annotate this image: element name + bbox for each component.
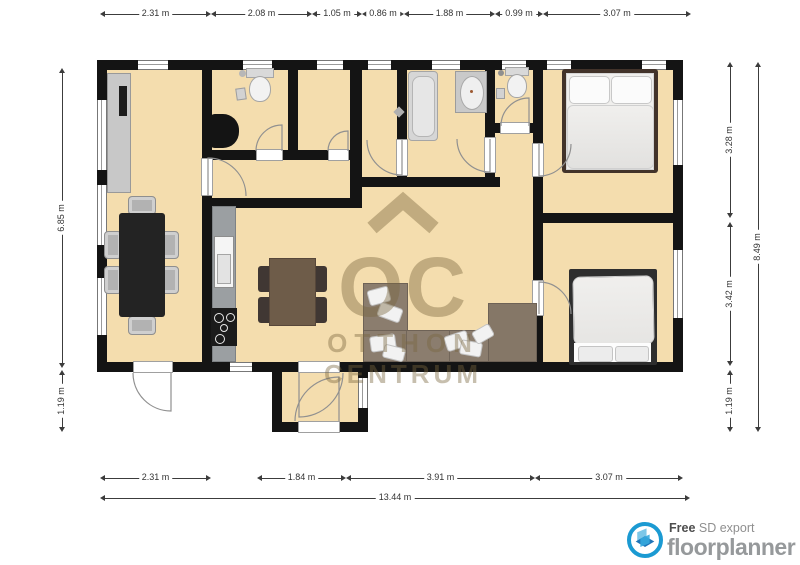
double-bed [562, 69, 658, 173]
single-bed [569, 269, 657, 365]
dim-label: 1.88 m [433, 9, 467, 19]
dim-bottom-3: 3.91 m [346, 472, 535, 484]
window-icon [368, 60, 391, 70]
dim-label: 6.85 m [57, 201, 67, 235]
sofa-chaise [488, 303, 537, 362]
dim-top-6: 0.99 m [495, 8, 543, 20]
window-icon [432, 60, 460, 70]
dim-label: 1.19 m [725, 384, 735, 418]
dim-label: 2.31 m [139, 9, 173, 19]
dim-label: 3.07 m [592, 473, 626, 483]
door-hallway [201, 158, 213, 196]
dim-label: 3.42 m [725, 277, 735, 311]
wall-wc-storage-divider [288, 70, 298, 155]
toilet-icon [507, 74, 527, 98]
door-bath-nook [396, 139, 408, 176]
window-icon [97, 100, 107, 170]
door-storage [328, 149, 349, 161]
dim-right-2: 3.42 m [724, 222, 736, 366]
toilet-icon [249, 76, 271, 102]
washbasin [455, 71, 487, 113]
dim-right-3: 1.19 m [724, 370, 736, 432]
door-vestibule-inner [298, 361, 340, 373]
flush-button [498, 70, 504, 76]
sink-basin [217, 254, 231, 284]
dim-bottom-total: 13.44 m [100, 492, 690, 504]
small-sink-icon [235, 87, 247, 100]
kitchen-table [269, 258, 316, 326]
small-sink-icon [496, 88, 505, 99]
dim-label: 2.31 m [139, 473, 173, 483]
dim-bottom-2: 1.84 m [257, 472, 346, 484]
dim-label: 1.84 m [285, 473, 319, 483]
wall-bath-bottom [350, 177, 500, 187]
floorplanner-wordmark: floorplanner [667, 534, 795, 561]
dim-label: 3.07 m [600, 9, 634, 19]
vestibule-floor [282, 372, 358, 422]
dim-label: 1.05 m [320, 9, 354, 19]
floorplanner-icon [627, 522, 663, 558]
window-icon [230, 362, 252, 372]
dim-label: 1.19 m [57, 384, 67, 418]
window-icon [673, 250, 683, 318]
dim-left-1: 6.85 m [56, 68, 68, 368]
dim-right-total: 8.49 m [752, 62, 764, 432]
window-icon [358, 378, 368, 408]
floorplan-export: OC OTTHON CENTRUM 2.31 m 2.08 m 1.05 m 0… [0, 0, 800, 565]
dim-top-7: 3.07 m [543, 8, 691, 20]
window-icon [673, 100, 683, 165]
flush-button [239, 70, 246, 77]
floorplanner-logo: Free SD export floorplanner [620, 518, 798, 564]
dim-right-1: 3.28 m [724, 62, 736, 218]
dim-top-5: 1.88 m [404, 8, 495, 20]
dim-top-2: 2.08 m [211, 8, 312, 20]
dim-label: 0.99 m [502, 9, 536, 19]
door-bathroom [484, 137, 496, 173]
door-entrance [298, 421, 340, 433]
dim-top-3: 1.05 m [312, 8, 362, 20]
dim-label: 2.08 m [245, 9, 279, 19]
window-icon [317, 60, 343, 70]
cooktop [211, 308, 237, 346]
door-wc [500, 122, 530, 134]
dark-washbasin [209, 114, 239, 148]
sd-export-label: SD export [695, 521, 754, 535]
dim-bottom-1: 2.31 m [100, 472, 211, 484]
dim-label: 8.49 m [753, 230, 763, 264]
tv-icon [119, 86, 127, 116]
dim-label: 0.86 m [366, 9, 400, 19]
dim-top-4: 0.86 m [362, 8, 404, 20]
dim-label: 13.44 m [376, 493, 415, 503]
wall-bedroom-divider [543, 213, 683, 223]
dining-table [119, 213, 165, 317]
dim-bottom-4: 3.07 m [535, 472, 683, 484]
door-toilet [256, 149, 283, 161]
dim-left-2: 1.19 m [56, 370, 68, 432]
door-exterior-dining [133, 361, 173, 373]
door-bedroom-top [532, 143, 544, 177]
bathtub [408, 71, 438, 141]
free-label: Free [669, 521, 695, 535]
dim-top-1: 2.31 m [100, 8, 211, 20]
dim-label: 3.28 m [725, 123, 735, 157]
dim-label: 3.91 m [424, 473, 458, 483]
window-icon [138, 60, 168, 70]
chair [128, 316, 156, 335]
